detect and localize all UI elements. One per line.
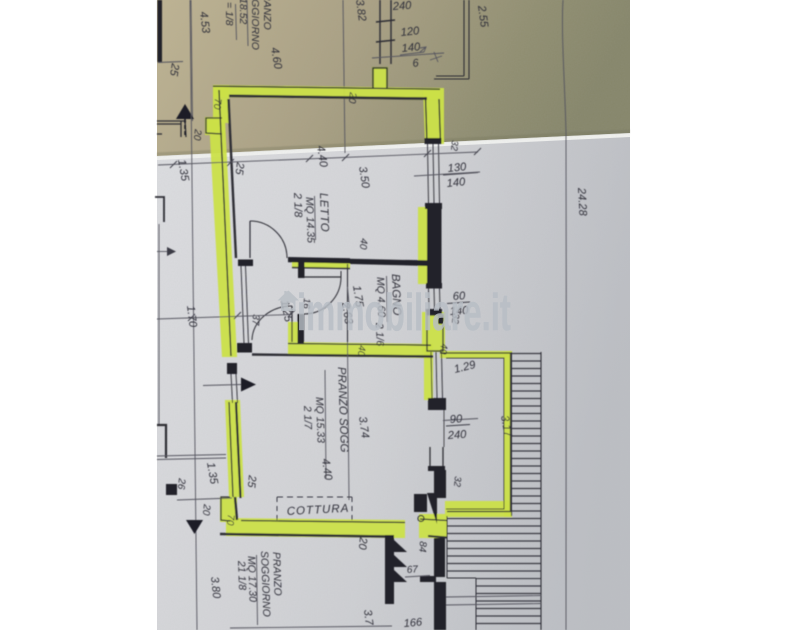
svg-text:25: 25 <box>245 474 258 489</box>
svg-text:2 1/8: 2 1/8 <box>291 192 304 219</box>
svg-text:32: 32 <box>448 140 460 152</box>
svg-text:40: 40 <box>355 345 367 358</box>
svg-text:240: 240 <box>391 0 412 13</box>
svg-text:240: 240 <box>446 429 467 442</box>
svg-text:40: 40 <box>437 343 449 356</box>
svg-text:24.28: 24.28 <box>575 187 589 217</box>
svg-text:140: 140 <box>446 176 467 190</box>
svg-text:immobiliare.it: immobiliare.it <box>297 284 511 342</box>
svg-text:3.80: 3.80 <box>208 576 222 600</box>
svg-text:32: 32 <box>451 476 463 488</box>
svg-text:70: 70 <box>211 98 223 111</box>
svg-text:3.7: 3.7 <box>361 609 375 627</box>
svg-text:20: 20 <box>346 91 358 105</box>
svg-text:21 1/8: 21 1/8 <box>235 560 248 591</box>
svg-text:LETTO: LETTO <box>317 193 330 233</box>
svg-text:SOGGIORNO: SOGGIORNO <box>258 551 272 617</box>
svg-text:MQ 15.33: MQ 15.33 <box>313 397 327 444</box>
svg-text:2 1/7: 2 1/7 <box>301 405 314 431</box>
svg-text:25: 25 <box>167 62 181 78</box>
svg-text:120: 120 <box>400 25 421 39</box>
svg-text:PRANZO: PRANZO <box>261 0 273 30</box>
svg-text:166: 166 <box>403 616 423 630</box>
svg-text:20: 20 <box>191 128 203 142</box>
svg-text:= 1/8: = 1/8 <box>223 2 235 26</box>
svg-text:40: 40 <box>357 238 369 251</box>
svg-text:67: 67 <box>406 564 418 576</box>
svg-text:SOGGIORNO: SOGGIORNO <box>249 0 261 50</box>
svg-text:90: 90 <box>449 413 463 426</box>
svg-text:70: 70 <box>224 514 236 527</box>
svg-text:20: 20 <box>356 536 369 551</box>
svg-text:20: 20 <box>200 503 212 517</box>
svg-text:MQ 14.35: MQ 14.35 <box>303 197 317 244</box>
svg-text:25: 25 <box>232 161 246 176</box>
svg-text:84: 84 <box>416 541 428 553</box>
